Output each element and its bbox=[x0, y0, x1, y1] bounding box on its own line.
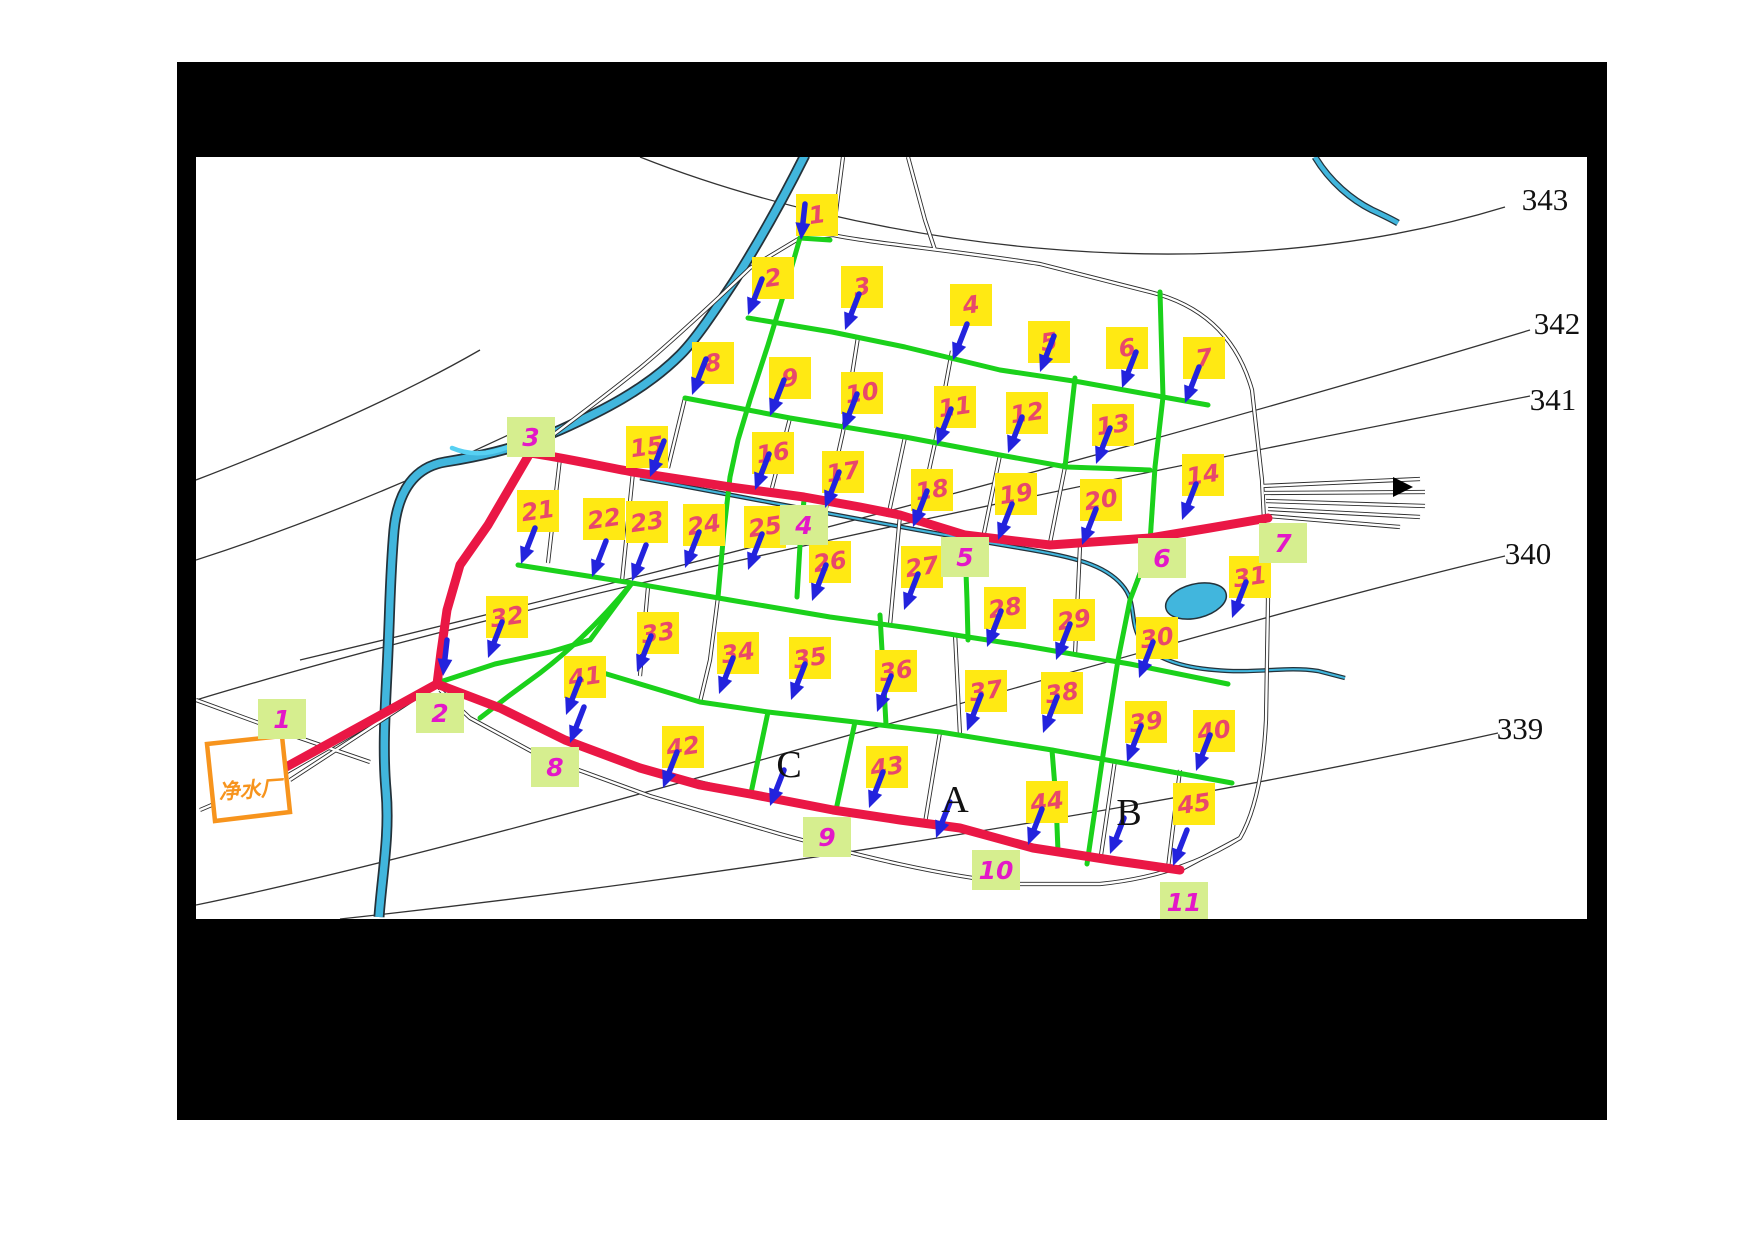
green-junction-label-10: 10 bbox=[979, 856, 1014, 885]
yellow-node-label-27: 27 bbox=[904, 551, 941, 583]
yellow-node-26: 26 bbox=[809, 541, 851, 583]
contour-label-340: 340 bbox=[1505, 536, 1552, 571]
yellow-node-44: 44 bbox=[1026, 781, 1068, 823]
green-junction-label-8: 8 bbox=[546, 753, 563, 782]
yellow-node-24: 24 bbox=[683, 504, 725, 546]
yellow-node-label-22: 22 bbox=[586, 503, 623, 535]
yellow-node-9: 9 bbox=[769, 357, 811, 399]
yellow-node-label-25: 25 bbox=[747, 511, 784, 543]
contour-label-341: 341 bbox=[1530, 382, 1577, 417]
green-junction-5: 5 bbox=[941, 537, 989, 577]
green-junction-label-4: 4 bbox=[794, 511, 812, 540]
yellow-node-41: 41 bbox=[564, 656, 606, 698]
yellow-node-label-32: 32 bbox=[489, 601, 526, 633]
yellow-node-label-40: 40 bbox=[1195, 715, 1233, 748]
yellow-node-label-45: 45 bbox=[1175, 788, 1213, 821]
green-junction-9: 9 bbox=[803, 817, 851, 857]
yellow-node-14: 14 bbox=[1182, 454, 1224, 496]
green-junction-label-11: 11 bbox=[1167, 888, 1202, 917]
yellow-node-label-16: 16 bbox=[755, 437, 792, 469]
green-junction-1: 1 bbox=[258, 699, 306, 739]
yellow-node-label-39: 39 bbox=[1128, 706, 1165, 738]
yellow-node-27: 27 bbox=[901, 546, 943, 588]
green-junction-label-6: 6 bbox=[1153, 544, 1170, 573]
water-plant: 净水厂 bbox=[207, 736, 290, 821]
yellow-node-label-29: 29 bbox=[1056, 604, 1093, 636]
green-junction-label-1: 1 bbox=[273, 705, 290, 734]
yellow-node-label-20: 20 bbox=[1083, 484, 1120, 516]
green-junction-label-7: 7 bbox=[1274, 529, 1292, 558]
yellow-node-11: 11 bbox=[934, 386, 976, 428]
yellow-node-38: 38 bbox=[1041, 672, 1083, 714]
yellow-node-16: 16 bbox=[752, 432, 794, 474]
yellow-node-label-14: 14 bbox=[1185, 459, 1222, 491]
yellow-node-label-18: 18 bbox=[914, 474, 951, 506]
yellow-node-32: 32 bbox=[486, 596, 528, 638]
green-junction-label-3: 3 bbox=[522, 423, 539, 452]
block-letter-B: B bbox=[1116, 792, 1141, 834]
yellow-node-33: 33 bbox=[637, 612, 679, 654]
yellow-node-label-35: 35 bbox=[792, 642, 829, 674]
block-letter-A: A bbox=[941, 779, 969, 821]
green-junction-8: 8 bbox=[531, 747, 579, 787]
green-junction-4: 4 bbox=[780, 505, 828, 545]
yellow-node-label-37: 37 bbox=[968, 675, 1005, 707]
yellow-node-20: 20 bbox=[1080, 479, 1122, 521]
yellow-node-4: 4 bbox=[950, 284, 992, 326]
green-junction-2: 2 bbox=[416, 693, 464, 733]
green-pipe-0 bbox=[800, 238, 830, 240]
yellow-node-21: 21 bbox=[517, 490, 559, 532]
yellow-node-label-42: 42 bbox=[664, 731, 702, 764]
figure-page: 净水厂 123456789101112131415161718192021222… bbox=[0, 0, 1754, 1240]
map-sheet bbox=[196, 157, 1587, 919]
yellow-node-label-43: 43 bbox=[868, 751, 906, 784]
green-junction-3: 3 bbox=[507, 417, 555, 457]
yellow-node-label-36: 36 bbox=[878, 655, 915, 687]
yellow-node-35: 35 bbox=[789, 637, 831, 679]
yellow-node-40: 40 bbox=[1193, 710, 1235, 752]
yellow-node-36: 36 bbox=[875, 650, 917, 692]
yellow-node-3: 3 bbox=[841, 266, 883, 308]
yellow-node-label-31: 31 bbox=[1232, 561, 1269, 593]
yellow-node-22: 22 bbox=[583, 498, 625, 540]
yellow-node-label-44: 44 bbox=[1028, 786, 1066, 819]
green-junction-6: 6 bbox=[1138, 538, 1186, 578]
yellow-node-label-30: 30 bbox=[1139, 622, 1176, 654]
yellow-node-12: 12 bbox=[1006, 392, 1048, 434]
green-junction-label-5: 5 bbox=[956, 543, 973, 572]
yellow-node-19: 19 bbox=[995, 473, 1037, 515]
yellow-node-label-21: 21 bbox=[520, 495, 557, 527]
yellow-node-17: 17 bbox=[822, 451, 864, 493]
green-junction-7: 7 bbox=[1259, 523, 1307, 563]
yellow-node-label-12: 12 bbox=[1009, 397, 1046, 429]
yellow-node-label-38: 38 bbox=[1044, 677, 1081, 709]
yellow-node-37: 37 bbox=[965, 670, 1007, 712]
yellow-node-45: 45 bbox=[1173, 783, 1215, 825]
yellow-node-6: 6 bbox=[1106, 327, 1148, 369]
yellow-node-label-23: 23 bbox=[629, 506, 666, 538]
yellow-node-label-19: 19 bbox=[998, 478, 1035, 510]
yellow-node-43: 43 bbox=[866, 746, 908, 788]
yellow-node-label-28: 28 bbox=[987, 592, 1024, 624]
yellow-node-label-26: 26 bbox=[812, 546, 849, 578]
water-plant-label: 净水厂 bbox=[218, 776, 287, 805]
yellow-node-13: 13 bbox=[1092, 404, 1134, 446]
green-junction-11: 11 bbox=[1160, 882, 1208, 922]
water-network-map: 净水厂 123456789101112131415161718192021222… bbox=[0, 0, 1754, 1240]
yellow-node-label-24: 24 bbox=[686, 509, 723, 541]
yellow-node-10: 10 bbox=[841, 372, 883, 414]
block-letter-C: C bbox=[776, 744, 801, 786]
yellow-node-label-10: 10 bbox=[844, 377, 881, 409]
yellow-node-7: 7 bbox=[1183, 337, 1225, 379]
yellow-node-label-11: 11 bbox=[937, 391, 974, 423]
contour-label-342: 342 bbox=[1534, 306, 1581, 341]
yellow-node-18: 18 bbox=[911, 469, 953, 511]
yellow-node-label-13: 13 bbox=[1095, 409, 1132, 441]
yellow-node-label-34: 34 bbox=[720, 637, 757, 669]
green-junction-10: 10 bbox=[972, 850, 1020, 890]
yellow-node-25: 25 bbox=[744, 506, 786, 548]
yellow-node-42: 42 bbox=[662, 726, 704, 768]
green-junction-label-2: 2 bbox=[431, 699, 448, 728]
yellow-node-23: 23 bbox=[626, 501, 668, 543]
green-junction-label-9: 9 bbox=[818, 823, 835, 852]
contour-label-339: 339 bbox=[1497, 711, 1544, 746]
yellow-node-34: 34 bbox=[717, 632, 759, 674]
yellow-node-28: 28 bbox=[984, 587, 1026, 629]
contour-label-343: 343 bbox=[1522, 182, 1569, 217]
yellow-node-29: 29 bbox=[1053, 599, 1095, 641]
yellow-node-30: 30 bbox=[1136, 617, 1178, 659]
yellow-node-label-17: 17 bbox=[825, 456, 862, 488]
yellow-node-label-41: 41 bbox=[566, 661, 604, 694]
yellow-node-39: 39 bbox=[1125, 701, 1167, 743]
